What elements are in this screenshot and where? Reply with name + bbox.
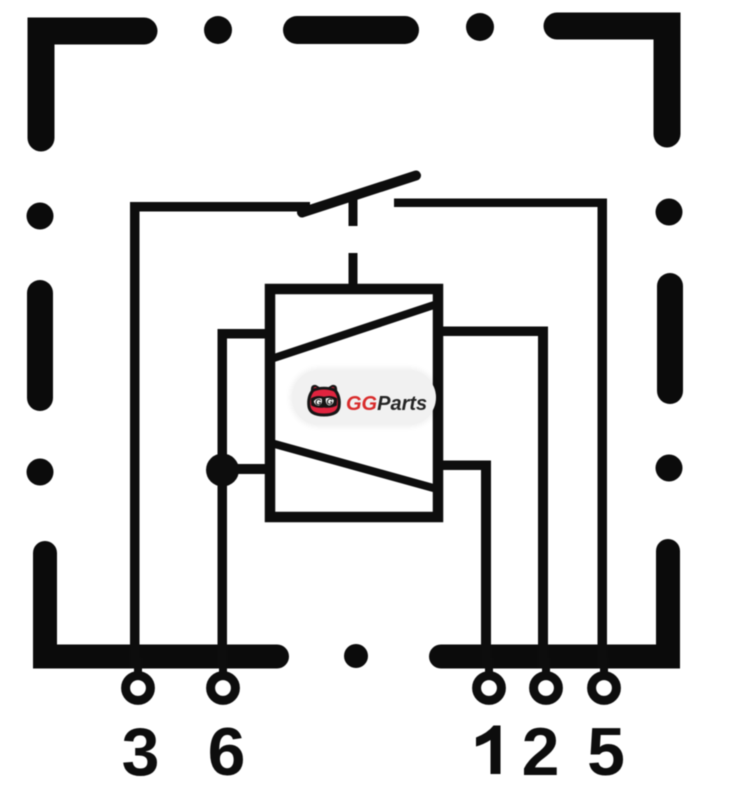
svg-text:3: 3 <box>122 714 160 790</box>
svg-text:6: 6 <box>208 714 246 790</box>
svg-text:5: 5 <box>587 714 625 790</box>
svg-text:G: G <box>326 397 332 406</box>
svg-text:GGParts: GGParts <box>346 393 427 415</box>
svg-text:2: 2 <box>522 714 560 790</box>
svg-text:G: G <box>315 398 321 407</box>
